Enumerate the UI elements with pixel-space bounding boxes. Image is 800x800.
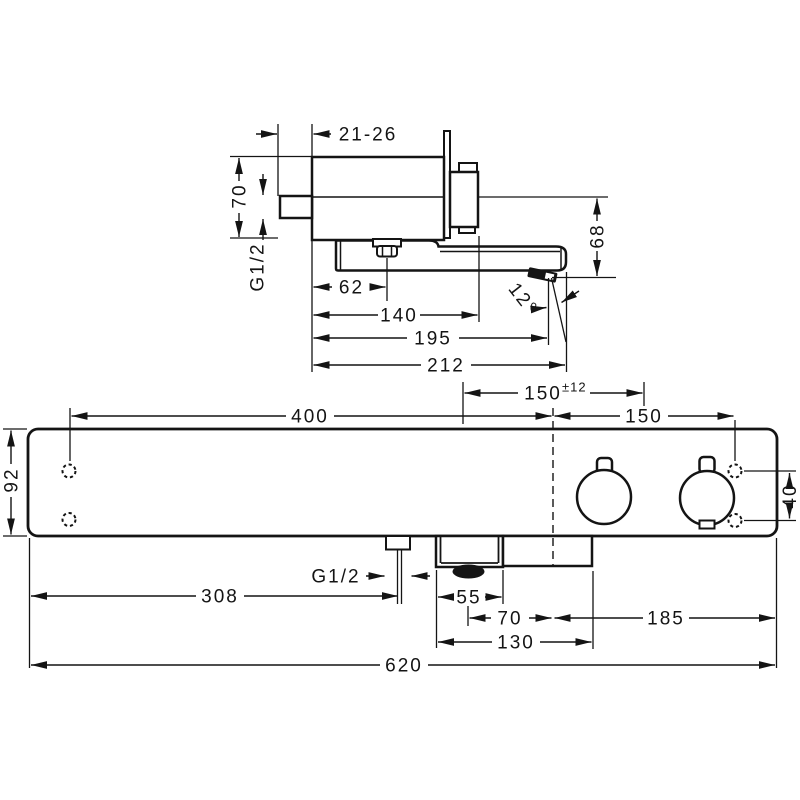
technical-drawing-page: 21-26 70 G1/2 62 140 195 <box>0 0 800 800</box>
dim-supply-tolerance-label: ±12 <box>562 380 587 395</box>
dim-spout-length-label: 212 <box>427 356 465 377</box>
dim-body-height-front-label: 92 <box>2 467 23 492</box>
valve-body-side <box>312 157 444 240</box>
mixer-installation-drawing: 21-26 70 G1/2 62 140 195 <box>0 0 800 800</box>
dim-total-width-label: 620 <box>385 656 423 677</box>
fixing-hole-bottom-left <box>63 513 76 526</box>
dim-thread-side-label: G1/2 <box>248 242 269 291</box>
lower-housing-box <box>503 536 592 566</box>
dim-center-to-fixing-label: 150 <box>625 407 663 428</box>
dim-left-to-outlet-label: 308 <box>201 587 239 608</box>
dim-handle-depth-label: 140 <box>380 306 418 327</box>
fixing-hole-top-left <box>63 465 76 478</box>
dim-outlet-depth-label: 195 <box>414 329 452 350</box>
background <box>0 0 800 800</box>
handle-knob-side <box>450 172 478 227</box>
outlet-connector-front <box>386 536 410 550</box>
clamp-nut <box>373 239 401 257</box>
dim-nut-offset-label: 62 <box>339 278 364 299</box>
dim-wall-depth-label: 21-26 <box>339 125 398 146</box>
hose-outlet-box <box>436 536 503 567</box>
dim-outlet-width-label: 55 <box>456 588 481 609</box>
dim-outlet-unit-width-label: 130 <box>497 633 535 654</box>
dim-outlet-to-center-label: 70 <box>497 609 522 630</box>
base-plate-front <box>28 429 777 536</box>
fixing-hole-bottom-right <box>729 514 742 527</box>
dim-thread-front-label: G1/2 <box>311 567 360 588</box>
supply-connector-side <box>280 196 312 218</box>
dim-body-height-side-label: 70 <box>230 183 251 208</box>
dim-supply-spacing-label: 150 <box>524 384 562 405</box>
dim-left-to-center-label: 400 <box>291 407 329 428</box>
dim-center-to-right-edge-label: 185 <box>647 609 685 630</box>
dim-fixing-spacing-label: 40 <box>780 483 800 508</box>
dim-outlet-drop-label: 68 <box>588 223 609 248</box>
fixing-hole-top-right <box>729 465 742 478</box>
hose-outlet-nipple <box>453 565 485 579</box>
